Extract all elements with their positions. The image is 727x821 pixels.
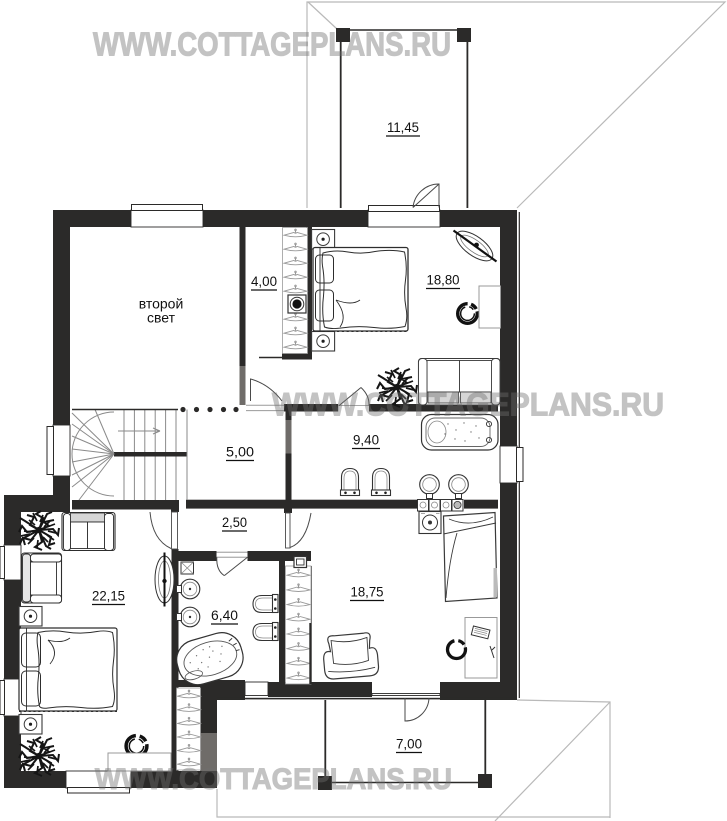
svg-text:6,40: 6,40	[211, 608, 238, 623]
svg-text:9,40: 9,40	[353, 433, 379, 448]
svg-text:18,75: 18,75	[351, 585, 384, 600]
svg-text:18,80: 18,80	[427, 273, 460, 288]
svg-text:4,00: 4,00	[251, 274, 277, 289]
svg-text:2,50: 2,50	[222, 515, 247, 530]
svg-text:WWW.COTTAGEPLANS.RU: WWW.COTTAGEPLANS.RU	[93, 26, 451, 63]
svg-text:5,00: 5,00	[226, 445, 254, 460]
svg-text:7,00: 7,00	[396, 737, 422, 752]
svg-text:22,15: 22,15	[92, 589, 125, 604]
svg-text:свет: свет	[147, 310, 176, 326]
svg-text:WWW.COTTAGEPLANS.RU: WWW.COTTAGEPLANS.RU	[272, 387, 664, 423]
svg-text:11,45: 11,45	[387, 120, 419, 135]
svg-text:WWW.COTTAGEPLANS.RU: WWW.COTTAGEPLANS.RU	[95, 763, 452, 796]
